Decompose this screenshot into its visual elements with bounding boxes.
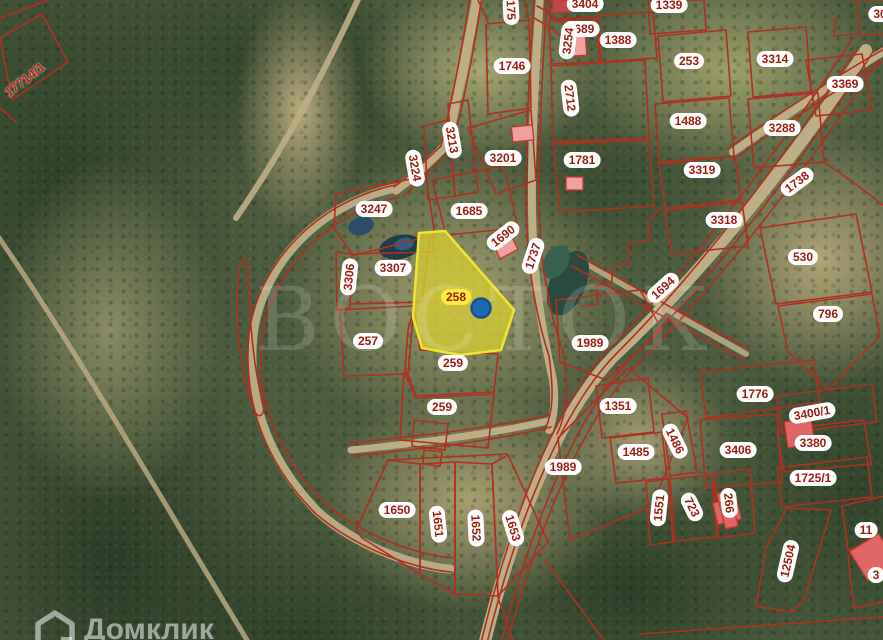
parcel-label-175[interactable]: 175: [502, 0, 520, 25]
domclick-logo: Домклик: [34, 610, 214, 640]
domclick-wordmark: Домклик: [84, 613, 214, 640]
parcel-label-3307[interactable]: 3307: [375, 260, 412, 276]
parcel-label-3314[interactable]: 3314: [757, 51, 794, 67]
parcel-label-3201[interactable]: 3201: [485, 150, 522, 166]
parcel-label-3288[interactable]: 3288: [764, 120, 801, 136]
parcel-label-1725-1[interactable]: 1725/1: [790, 470, 837, 486]
parcel-label-1776[interactable]: 1776: [737, 386, 774, 402]
parcel-label-1685[interactable]: 1685: [451, 203, 488, 219]
parcel-label-253[interactable]: 253: [674, 53, 704, 69]
parcel-label-530[interactable]: 530: [788, 249, 818, 265]
parcel-label-258[interactable]: 258: [441, 289, 471, 305]
parcel-label-3380[interactable]: 3380: [795, 435, 832, 451]
parcel-label-259[interactable]: 259: [427, 399, 457, 415]
parcel-label-1746[interactable]: 1746: [494, 58, 531, 74]
map-canvas[interactable]: ВОСТОК 17714/117534041339168932541388253…: [0, 0, 883, 640]
parcel-label-1989[interactable]: 1989: [572, 335, 609, 351]
parcel-label-1351[interactable]: 1351: [600, 398, 637, 414]
parcel-label-3[interactable]: 3: [868, 567, 883, 583]
parcel-label-11[interactable]: 11: [855, 522, 878, 538]
parcel-label-3319[interactable]: 3319: [684, 162, 721, 178]
parcel-label-1652[interactable]: 1652: [467, 509, 485, 546]
parcel-label-3318[interactable]: 3318: [706, 212, 743, 228]
parcel-label-1485[interactable]: 1485: [618, 444, 655, 460]
parcel-label-266[interactable]: 266: [719, 487, 738, 519]
parcel-label-1488[interactable]: 1488: [670, 113, 707, 129]
parcel-label-3404[interactable]: 3404: [567, 0, 604, 12]
parcel-label-3406[interactable]: 3406: [720, 442, 757, 458]
parcel-label-796[interactable]: 796: [813, 306, 843, 322]
parcel-label-3247[interactable]: 3247: [356, 201, 393, 217]
parcel-label-257[interactable]: 257: [353, 333, 383, 349]
parcel-label-1650[interactable]: 1650: [379, 502, 416, 518]
parcel-label-1989[interactable]: 1989: [545, 459, 582, 475]
parcel-label-259[interactable]: 259: [438, 355, 468, 371]
parcel-label-1781[interactable]: 1781: [564, 152, 601, 168]
domclick-house-icon: [34, 610, 76, 640]
cadastral-overlay: [0, 0, 883, 640]
parcel-marker[interactable]: [472, 299, 491, 318]
parcel-label-3369[interactable]: 3369: [827, 76, 864, 92]
parcel-label-1339[interactable]: 1339: [651, 0, 688, 13]
parcel-label-1388[interactable]: 1388: [600, 32, 637, 48]
parcel-label-30[interactable]: 30: [868, 6, 883, 22]
